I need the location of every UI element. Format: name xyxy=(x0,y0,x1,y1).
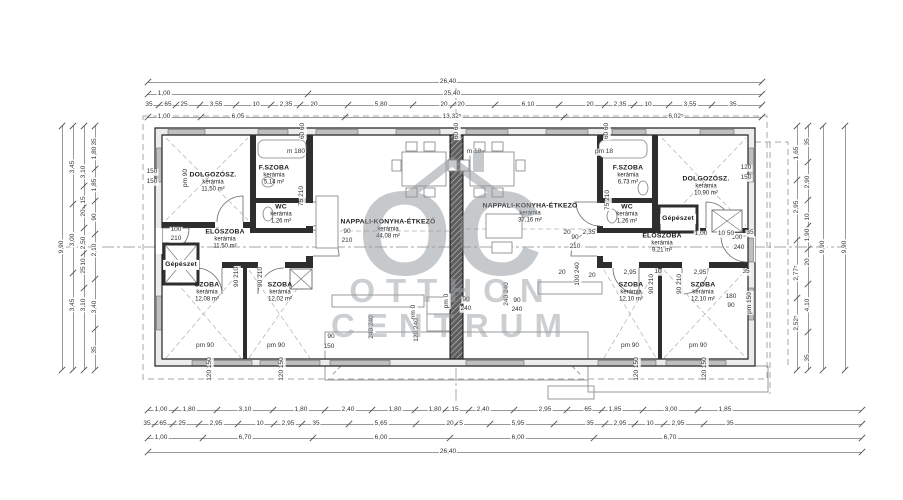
room-label: WCkerámia1,26 m² xyxy=(270,204,291,227)
dimension-label: 2,95 xyxy=(613,421,628,428)
dimension-label: 6,70 xyxy=(238,435,253,442)
dimension-tick xyxy=(858,448,865,455)
annotation-label: 60 60 xyxy=(604,122,611,140)
annotation-label: 35 xyxy=(741,269,750,276)
dimension-label: 1,80 xyxy=(428,407,443,414)
annotation-label: 20 xyxy=(562,230,571,237)
dimension-label: 35 xyxy=(805,137,812,146)
annotation-label: pm 0 xyxy=(444,293,451,309)
annotation-label: 90 xyxy=(726,303,735,310)
annotation-label: m 18 xyxy=(466,149,482,156)
annotation-label: 90 210 xyxy=(258,266,265,288)
annotation-label: 210 xyxy=(569,244,582,251)
dimension-label: 3,10 xyxy=(81,165,88,180)
dimension-label: 1,00 xyxy=(154,407,169,414)
dimension-label: 1,00 xyxy=(157,114,172,121)
dimension-label: 2,52⁵ xyxy=(794,314,801,331)
dimension-label: 35 xyxy=(728,102,737,109)
dimension-label: 65 xyxy=(583,407,592,414)
annotation-label: 120 150 xyxy=(207,356,214,382)
dimension-label: 4,10 xyxy=(805,298,812,313)
dimension-label: 10 xyxy=(255,421,264,428)
dimension-label: 2,95 xyxy=(671,421,686,428)
annotation-label: 240 240 xyxy=(369,314,376,340)
annotation-label: 90 xyxy=(512,298,521,305)
dimension-tick xyxy=(91,366,98,373)
dimension-label: 1,00 xyxy=(157,91,172,98)
dimension-label: 2,95 xyxy=(209,421,224,428)
dimension-line xyxy=(148,410,862,411)
dimension-label: 1,85 xyxy=(92,178,99,193)
annotation-label: 35 xyxy=(745,230,754,237)
room-label: SZOBAkerámia12,02 m² xyxy=(268,282,293,305)
dimension-label: 10 xyxy=(645,421,654,428)
dimension-label: 3,10 xyxy=(81,298,88,313)
annotation-label: 150 xyxy=(323,344,336,351)
dimension-label: 20 xyxy=(309,102,318,109)
annotation-label: 240 240 xyxy=(504,281,511,307)
dimension-label: 6,10 xyxy=(521,102,536,109)
annotation-label: 150 xyxy=(146,179,159,186)
dimension-label: 5,65 xyxy=(374,421,389,428)
dimension-label: 25 xyxy=(177,421,186,428)
dimension-tick xyxy=(858,420,865,427)
dimension-label: 1,80 xyxy=(182,407,197,414)
dimension-label: 25,40 xyxy=(443,91,461,98)
dimension-tick xyxy=(758,78,765,85)
annotation-label: 75 210 xyxy=(299,185,306,207)
dimension-label: 9,90 xyxy=(842,240,849,255)
dimension-label: 2,95 xyxy=(794,200,801,215)
annotation-label: 240 xyxy=(511,307,524,314)
dimension-label: 20 xyxy=(439,102,448,109)
dimension-label: 20 xyxy=(456,102,465,109)
dimension-label: 9,90 xyxy=(59,240,66,255)
annotation-label: 2,95 xyxy=(693,270,708,277)
annotation-label: 2,95 xyxy=(623,270,638,277)
annotation-label: 75 210 xyxy=(605,189,612,211)
room-label: ELŐSZOBAkerámia11,50 m² xyxy=(205,229,244,252)
dimension-label: 35 xyxy=(142,421,151,428)
dimension-tick xyxy=(858,434,865,441)
annotation-label: 1,00 xyxy=(694,231,709,238)
dimension-line xyxy=(148,452,862,453)
annotation-label: 20 xyxy=(587,273,596,280)
dimension-label: 2,40 xyxy=(341,407,356,414)
room-label: DOLGOZÓSZ.kerámia11,50 m² xyxy=(190,172,237,195)
annotation-label: 100 xyxy=(170,227,183,234)
annotation-label: 120 xyxy=(740,165,753,172)
dimension-label: 25 xyxy=(179,102,188,109)
dimension-tick xyxy=(80,366,87,373)
dimension-label: 65 xyxy=(163,102,172,109)
room-label: F.SZOBAkerámia6,73 m² xyxy=(613,165,643,188)
dimension-label: 90 xyxy=(92,212,99,221)
room-label: NAPPALI-KONYHA-ÉTKEZŐkerámia44,08 m² xyxy=(340,219,435,242)
annotation-label: pm 150 xyxy=(747,291,754,315)
annotation-label: 90 xyxy=(326,334,335,341)
dimension-label: 5,80 xyxy=(374,102,389,109)
annotation-label: m 180 xyxy=(286,149,306,156)
dimension-label: 3,00 xyxy=(664,407,679,414)
dimension-label: 13,32⁵ xyxy=(442,114,463,121)
room-label: DOLGOZÓSZ.kerámia10,90 m² xyxy=(683,176,730,199)
dimension-line xyxy=(148,105,762,106)
dimension-label: 3,55 xyxy=(683,102,698,109)
room-label: Gépészet xyxy=(660,214,696,224)
dimension-label: 1,00 xyxy=(154,435,169,442)
dimension-label: 10 xyxy=(643,102,652,109)
dimension-line xyxy=(797,126,798,370)
dimension-label: 2,95 xyxy=(538,407,553,414)
dimension-label: 5 xyxy=(458,421,464,428)
dimension-label: 6,02⁵ xyxy=(667,114,684,121)
dimension-tick xyxy=(758,90,765,97)
dimension-label: 2,40 xyxy=(476,407,491,414)
dimension-label: 2,10 xyxy=(92,243,99,258)
dimension-label: 3,45 xyxy=(70,298,77,313)
dimension-tick xyxy=(841,366,848,373)
dimension-label: 2,77⁵ xyxy=(794,264,801,281)
dimension-label: 6,00 xyxy=(511,435,526,442)
dimension-label: 10 xyxy=(251,102,260,109)
annotation-label: pm 90 xyxy=(620,343,640,350)
annotation-label: 150 xyxy=(146,169,159,176)
annotation-label: 240 xyxy=(733,245,746,252)
dimension-label: 3,10 xyxy=(238,407,253,414)
dimension-label: 1,65 xyxy=(794,146,801,161)
room-label: ELŐSZOBAkerámia9,21 m² xyxy=(642,233,681,256)
dimension-label: 6,00 xyxy=(374,435,389,442)
dimension-label: 35 xyxy=(725,421,734,428)
dimension-label: 20 xyxy=(445,421,454,428)
dimension-label: 3,45 xyxy=(70,160,77,175)
dimension-tick xyxy=(69,366,76,373)
annotation-label: 60 60 xyxy=(300,122,307,140)
annotation-label: 120 150 xyxy=(634,356,641,382)
annotation-label: 90 210 xyxy=(234,266,241,288)
annotation-label: 120 150 xyxy=(702,356,709,382)
annotation-label: 120 150 xyxy=(279,356,286,382)
dimension-label: 3,55 xyxy=(209,102,224,109)
dimension-label: 35 xyxy=(311,421,320,428)
dimension-label: 15 xyxy=(450,407,459,414)
dimension-label: 25 xyxy=(81,265,88,274)
annotation-label: 60 60 xyxy=(454,122,461,140)
dimension-line xyxy=(148,438,862,439)
dimension-label: 1,85 xyxy=(608,407,623,414)
dimension-label: 26,40 xyxy=(439,79,457,86)
annotation-label: 210 xyxy=(170,236,183,243)
dimension-label: 1,80 xyxy=(388,407,403,414)
annotation-label: pm 18 xyxy=(594,149,614,156)
room-label: WCkerámia1,26 m² xyxy=(616,204,637,227)
annotation-label: 20 xyxy=(557,270,566,277)
dimension-label: 1,90 xyxy=(805,228,812,243)
annotation-label: 240 xyxy=(460,306,473,313)
annotation-label: 120 240 xyxy=(414,317,421,343)
dimension-label: 2,95 xyxy=(281,421,296,428)
dimension-label: 1,80 xyxy=(294,407,309,414)
room-label: Gépészet xyxy=(163,260,199,270)
annotation-label: 90 xyxy=(570,235,579,242)
dimension-tick xyxy=(858,406,865,413)
room-label: SZOBAkerámia12,08 m² xyxy=(195,282,220,305)
room-label: SZOBAkerámia12,10 m² xyxy=(619,282,644,305)
dimension-tick xyxy=(793,366,800,373)
dimension-label: 20 xyxy=(805,257,812,266)
dimension-label: 2,50 xyxy=(81,236,88,251)
room-label: SZOBAkerámia12,10 m² xyxy=(691,282,716,305)
dimension-tick xyxy=(58,366,65,373)
dimension-label: 65 xyxy=(158,421,167,428)
dimension-label: 10 xyxy=(805,212,812,221)
annotation-label: pm 90 xyxy=(183,168,190,188)
annotation-label: 2,35 xyxy=(582,230,597,237)
dimension-tick xyxy=(804,366,811,373)
annotation-label: pm 90 xyxy=(266,343,286,350)
room-label: F.SZOBAkerámia5,14 m² xyxy=(259,165,289,188)
dimension-label: 3,00 xyxy=(70,233,77,248)
annotation-label: 10 xyxy=(653,269,662,276)
room-label: NAPPALI-KONYHA-ÉTKEZŐkerámia37,16 m² xyxy=(482,203,577,226)
dimension-label: 26,40 xyxy=(439,449,457,456)
annotation-label: 90 xyxy=(461,297,470,304)
dimension-label: 2,35 xyxy=(279,102,294,109)
annotation-label: pm 90 xyxy=(195,343,215,350)
dimension-label: 2,90 xyxy=(805,175,812,190)
annotation-label: 90 210 xyxy=(649,273,656,295)
dimension-label: 3,40 xyxy=(92,300,99,315)
dimension-tick xyxy=(819,366,826,373)
dimension-label: 20 xyxy=(81,208,88,217)
dimension-label: 9,90 xyxy=(820,240,827,255)
dimension-label: 20 xyxy=(585,102,594,109)
dimension-label: 1,85 xyxy=(718,407,733,414)
dimension-label: 35 xyxy=(92,345,99,354)
dimension-label: 15 xyxy=(81,195,88,204)
annotation-label: 100 240 xyxy=(575,261,582,287)
annotation-label: 10 50 xyxy=(717,231,735,238)
dimension-label: 1,80 xyxy=(92,146,99,161)
annotation-label: 90 210 xyxy=(677,273,684,295)
annotation-label: 180 xyxy=(725,294,738,301)
dimension-tick xyxy=(758,101,765,108)
annotation-label: pm 90 xyxy=(688,343,708,350)
dimension-label: 35 xyxy=(585,421,594,428)
dimension-label: 2,35 xyxy=(613,102,628,109)
labels-layer: 26,401,0025,403565253,55102,35205,802020… xyxy=(0,0,903,500)
dimension-label: 35 xyxy=(144,102,153,109)
floorplan-page: OC OTTHON CENTRUM 26,401,0025,403565253,… xyxy=(0,0,903,500)
dimension-tick xyxy=(758,113,765,120)
dimension-label: 6,70 xyxy=(663,435,678,442)
dimension-label: 5,95 xyxy=(511,421,526,428)
dimension-label: 6,05 xyxy=(231,114,246,121)
dimension-label: 35 xyxy=(805,353,812,362)
annotation-label: 150 xyxy=(740,175,753,182)
